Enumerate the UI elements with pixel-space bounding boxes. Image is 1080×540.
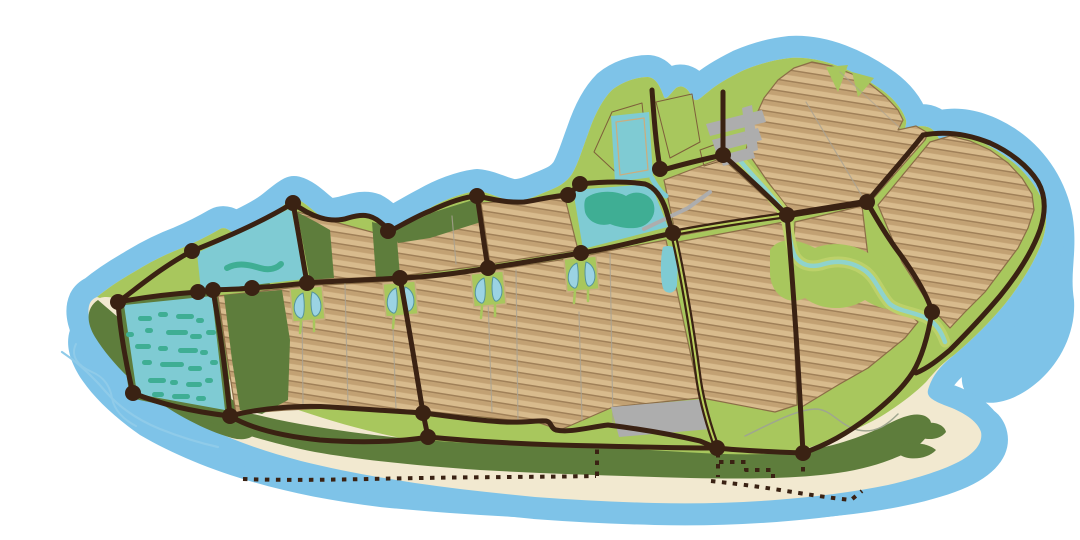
road-node: [480, 260, 496, 276]
marsh-dash: [145, 328, 153, 333]
marsh-dash: [206, 330, 216, 335]
road-node: [190, 284, 206, 300]
marsh-dash: [188, 366, 202, 371]
marsh-dash: [142, 360, 152, 365]
road-node: [715, 147, 731, 163]
road-node: [709, 440, 725, 456]
pond-center-blob: [584, 192, 654, 228]
road-node: [205, 282, 221, 298]
teardrop-pond-pairs-shape-4: [481, 306, 482, 318]
marsh-dash: [148, 378, 166, 383]
teardrop-pond-pairs-shape-4: [574, 291, 575, 303]
marsh-dash: [158, 346, 168, 351]
teardrop-pond-pairs-shape-4: [393, 316, 394, 328]
road-node: [244, 280, 260, 296]
marsh-dash: [186, 382, 202, 387]
marsh-dash: [158, 312, 168, 317]
marsh-dash: [126, 332, 134, 337]
marsh-dash: [190, 334, 202, 339]
marsh-dash: [160, 362, 184, 367]
road-node: [392, 270, 408, 286]
marsh-dash: [176, 314, 194, 319]
island-map: [0, 0, 1080, 540]
marsh-dash: [196, 396, 206, 401]
marsh-dash: [200, 350, 208, 355]
road-node: [285, 195, 301, 211]
marsh-dash: [172, 394, 190, 399]
road-node: [125, 385, 141, 401]
road-node: [420, 429, 436, 445]
road-node: [299, 275, 315, 291]
teardrop-pond-pairs-shape-4: [300, 321, 301, 333]
marsh-dash: [170, 380, 178, 385]
marsh-dash: [205, 378, 213, 383]
road-node: [110, 294, 126, 310]
road-node: [560, 187, 576, 203]
road-node: [380, 223, 396, 239]
road-node: [859, 194, 875, 210]
map-layers: [62, 58, 1074, 522]
road-node: [665, 225, 681, 241]
road-node: [222, 408, 238, 424]
road-node: [572, 176, 588, 192]
marsh-dash: [138, 316, 152, 321]
marsh-dash: [210, 360, 218, 365]
marsh-dash: [196, 318, 204, 323]
marsh-dash: [152, 392, 164, 397]
road-node: [573, 245, 589, 261]
road-node: [795, 445, 811, 461]
road-node: [184, 243, 200, 259]
marsh-dash: [178, 348, 198, 353]
island-map-page: [0, 0, 1080, 540]
marsh-dash: [166, 330, 188, 335]
road-node: [779, 207, 795, 223]
road-node: [415, 405, 431, 421]
road-node: [924, 304, 940, 320]
marsh-dash: [135, 344, 151, 349]
road-node: [652, 161, 668, 177]
road-node: [469, 188, 485, 204]
